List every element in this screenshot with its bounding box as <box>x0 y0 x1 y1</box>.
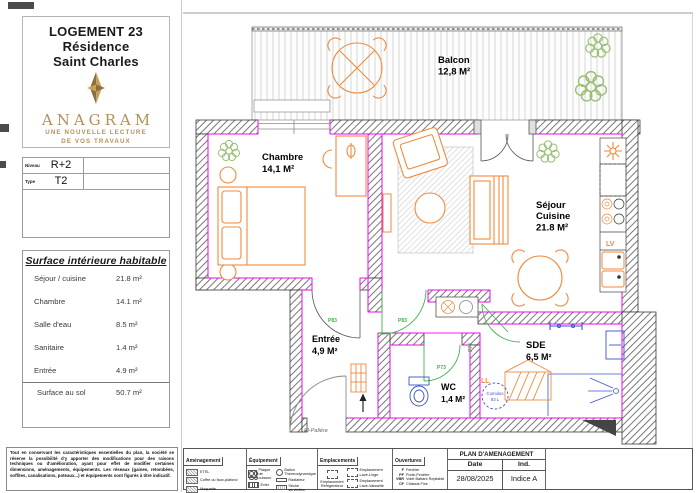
drawing-title: PLAN D'AMENAGEMENT <box>448 449 545 460</box>
legend-amenagement: Aménagement ETEL Coffre ou faux-plafond … <box>184 449 247 489</box>
wc-area: 1,4 M² <box>441 394 465 404</box>
level-value: R+2 <box>41 159 81 171</box>
hatch-swatch-icon <box>186 486 198 493</box>
table-row: Chambre 14.1 m² <box>23 290 169 313</box>
table-total-row: Surface au sol 50.7 m² <box>23 382 169 402</box>
row-label: Entrée <box>34 366 116 375</box>
hatch-swatch-icon <box>186 469 198 476</box>
dashed-slot-icon <box>327 470 338 479</box>
wc-door <box>424 345 460 381</box>
etel-shelf <box>351 364 366 392</box>
sde-label: SDE <box>526 340 546 351</box>
table-divider <box>83 158 84 189</box>
type-value: T2 <box>41 175 81 187</box>
residence-title-2: Saint Charles <box>23 54 169 69</box>
abbr: CF <box>395 482 404 487</box>
entree-area: 4,9 M² <box>312 346 338 356</box>
row-value: 14.1 m² <box>116 297 160 306</box>
cumulus <box>482 383 508 409</box>
cumulus-label-2: 93 L <box>491 397 500 402</box>
entry-arrow-icon <box>360 394 367 413</box>
legend-item-label: Emplacement Réfrigérateur <box>319 480 345 488</box>
residence-title-1: Résidence <box>23 39 169 54</box>
ind-header: Ind. <box>503 460 545 471</box>
legend-item-label: Radiateur <box>288 478 304 482</box>
table-row: Salle d'eau 8.5 m² <box>23 313 169 336</box>
total-value: 50.7 m² <box>116 388 160 397</box>
row-value: 8.5 m² <box>116 320 160 329</box>
row-value: 1.4 m² <box>116 343 160 352</box>
legend-item: Ballon Thermodynamique <box>276 468 316 476</box>
console <box>383 194 391 232</box>
entree-label: Entrée <box>312 334 340 344</box>
window-sill <box>254 100 330 112</box>
row-label: Chambre <box>34 297 116 306</box>
kitchen <box>600 138 626 292</box>
dashed-slot-icon <box>347 468 358 477</box>
legend-item-label: Ballon Thermodynamique <box>284 468 316 476</box>
legend-item: Radiateur <box>276 478 316 482</box>
floor-plan-sheet: { "sidebar": { "title_lines": ["LOGEMENT… <box>0 0 700 492</box>
level-type-table: Niveau R+2 Type T2 <box>22 157 170 238</box>
ind-value: Indice A <box>503 471 545 489</box>
chambre-area: 14,1 M² <box>262 164 294 175</box>
chambre-window <box>258 120 330 134</box>
cumulus-label-1: Cumulus <box>487 391 504 396</box>
anagram-logo <box>83 72 109 104</box>
door-label-sde: P73 <box>468 343 474 352</box>
legend-item-label: Coffre ou faux-plafond <box>200 478 238 482</box>
dining-set <box>509 247 571 309</box>
sejour-label-1: Séjour <box>536 200 566 211</box>
balcony: Balcon 12,8 M² <box>252 27 622 120</box>
desk-chair <box>323 150 332 168</box>
door-label-sejour: P83 <box>398 318 407 324</box>
total-label: Surface au sol <box>37 388 116 397</box>
row-value: 4.9 m² <box>116 366 160 375</box>
balcony-area: 12,8 M² <box>438 67 470 78</box>
legend-item: Moquette <box>186 486 244 493</box>
table-row: Séjour / cuisine 21.8 m² <box>23 267 169 290</box>
palier-label: Pl-Palière <box>304 428 328 434</box>
legend-item: Emplacement Lave-Linge <box>347 468 391 477</box>
row-label: Salle d'eau <box>34 320 116 329</box>
level-row: Niveau R+2 <box>23 158 169 174</box>
date-value: 28/08/2025 <box>448 471 503 489</box>
sink-icon <box>248 482 259 488</box>
legend-section-title: Aménagement <box>184 457 223 466</box>
sejour-area: 21.8 M² <box>536 223 568 234</box>
legend-ouvertures: Ouvertures F Fenêtre PF Porte-Fenêtre VB… <box>393 449 448 489</box>
legend-bar: Aménagement ETEL Coffre ou faux-plafond … <box>183 448 693 490</box>
legend-section-title: Ouvertures <box>393 457 425 466</box>
legend-item-label: Sèche serviettes <box>288 484 316 492</box>
balcony-door <box>474 120 536 161</box>
tv-unit <box>470 176 508 244</box>
type-label: Type <box>25 179 35 184</box>
table-row: Entrée 4.9 m² <box>23 359 169 382</box>
brand-name: ANAGRAM <box>23 111 169 129</box>
disclaimer-text: Tout en conservant les caractéristiques … <box>6 447 178 491</box>
legend-item-label: Moquette <box>200 487 216 491</box>
towel-dryer-icon <box>276 485 287 490</box>
title-block: PLAN D'AMENAGEMENT Date Ind. 28/08/2025 … <box>448 449 546 489</box>
brand-tagline-2: DE VOS TRAVAUX <box>23 138 169 147</box>
sejour-door <box>382 290 426 334</box>
doors <box>290 290 520 432</box>
chambre-door <box>312 290 360 338</box>
legend-item-label: Châssis Fixe <box>406 482 428 487</box>
row-value: 21.8 m² <box>116 274 160 283</box>
legend-section-title: Emplacements <box>318 457 358 466</box>
legend-item-label: Plaque de cuisson <box>259 468 274 481</box>
legend-item: ETEL <box>186 469 244 476</box>
date-header: Date <box>448 460 503 471</box>
project-title-box: LOGEMENT 23 Résidence Saint Charles ANAG… <box>22 16 170 148</box>
row-label: Séjour / cuisine <box>34 274 116 283</box>
row-label: Sanitaire <box>34 343 116 352</box>
shower <box>548 374 622 416</box>
legend-emplacements: Emplacements Emplacement Réfrigérateur E… <box>318 449 393 489</box>
legend-item-label: ETEL <box>200 470 210 474</box>
dashed-slot-icon <box>347 479 358 488</box>
water-heater-icon <box>276 469 283 476</box>
toilet-bowl <box>410 386 428 406</box>
entree-items <box>351 364 367 412</box>
chambre-label: Chambre <box>262 152 303 163</box>
drying-rack <box>505 360 551 400</box>
legend-item-label: Emplacement Lave-Linge <box>360 468 392 476</box>
legend-item-label: Emplacement Lave-Vaisselle <box>360 479 392 487</box>
cooktop-icon <box>248 470 257 478</box>
legend-item: Sèche serviettes <box>276 484 316 492</box>
balcony-label: Balcon <box>438 55 470 66</box>
sde-area: 6,5 M² <box>526 352 552 362</box>
legend-item: Coffre ou faux-plafond <box>186 477 244 484</box>
plant-icon <box>537 141 559 162</box>
door-label-chambre: P83 <box>328 318 337 324</box>
legend-item: Plaque de cuisson <box>248 468 274 481</box>
logement-title: LOGEMENT 23 <box>23 24 169 39</box>
mirror-cabinet <box>606 331 624 359</box>
wc-label: WC <box>441 382 456 392</box>
coffee-table <box>415 193 445 223</box>
legend-item: Emplacement Réfrigérateur <box>319 468 345 488</box>
sejour-label-2: Cuisine <box>536 211 570 222</box>
scan-mark <box>8 2 34 9</box>
hatch-swatch-icon <box>186 477 198 484</box>
legend-item: CF Châssis Fixe <box>395 482 445 487</box>
scan-mark <box>0 161 6 168</box>
vanity <box>436 297 478 317</box>
scan-mark <box>0 124 9 132</box>
legend-item: Évier <box>248 482 274 488</box>
surface-table: Surface intérieure habitable Séjour / cu… <box>22 250 170 428</box>
table-row: Sanitaire 1.4 m² <box>23 336 169 359</box>
plant-icon <box>218 140 239 160</box>
legend-section-title: Équipement <box>247 457 281 466</box>
brand-tagline-1: UNE NOUVELLE LECTURE <box>23 129 169 138</box>
door-label-wc: P73 <box>437 365 446 371</box>
type-row: Type T2 <box>23 174 169 190</box>
legend-item: Emplacement Lave-Vaisselle <box>347 479 391 488</box>
washer-label: LL <box>481 378 490 385</box>
legend-empty-cell <box>546 449 692 489</box>
dishwasher-label: LV <box>606 241 615 248</box>
legend-equipement: Équipement Plaque de cuisson Évier Ballo… <box>247 449 318 489</box>
surface-table-title: Surface intérieure habitable <box>23 255 169 267</box>
radiator-icon <box>276 478 287 482</box>
legend-item-label: Évier <box>261 483 270 487</box>
level-label: Niveau <box>25 163 40 168</box>
